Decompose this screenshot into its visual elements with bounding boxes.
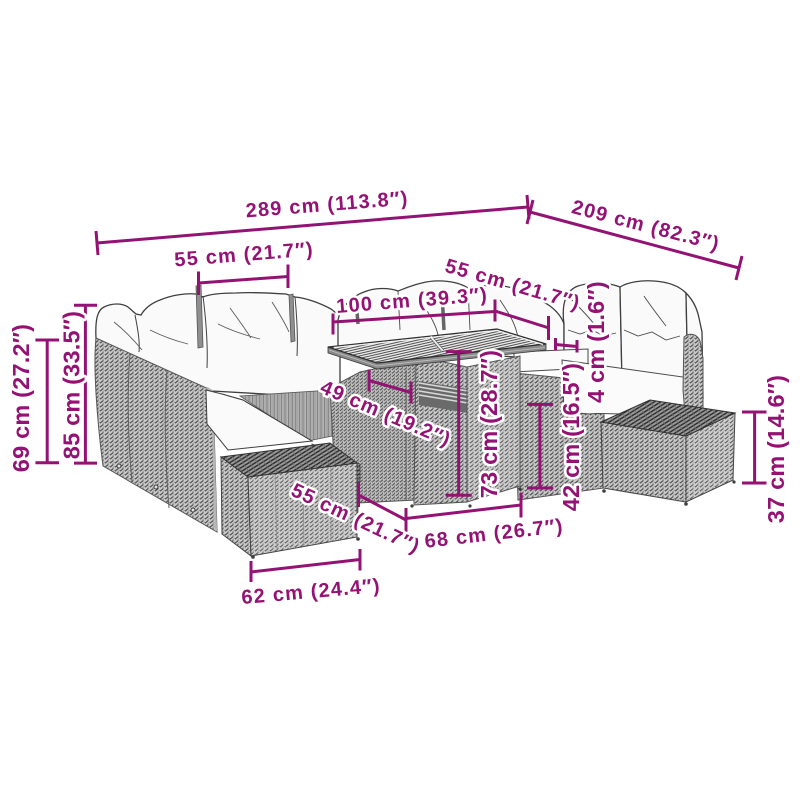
svg-text:69 cm (27.2″): 69 cm (27.2″) [8,324,34,472]
svg-text:37 cm (14.6″): 37 cm (14.6″) [763,375,789,523]
svg-text:4 cm (1.6″): 4 cm (1.6″) [583,281,609,403]
svg-text:42 cm (16.5″): 42 cm (16.5″) [558,363,584,511]
svg-text:73 cm (28.7″): 73 cm (28.7″) [476,350,502,498]
svg-text:85 cm (33.5″): 85 cm (33.5″) [59,311,85,459]
